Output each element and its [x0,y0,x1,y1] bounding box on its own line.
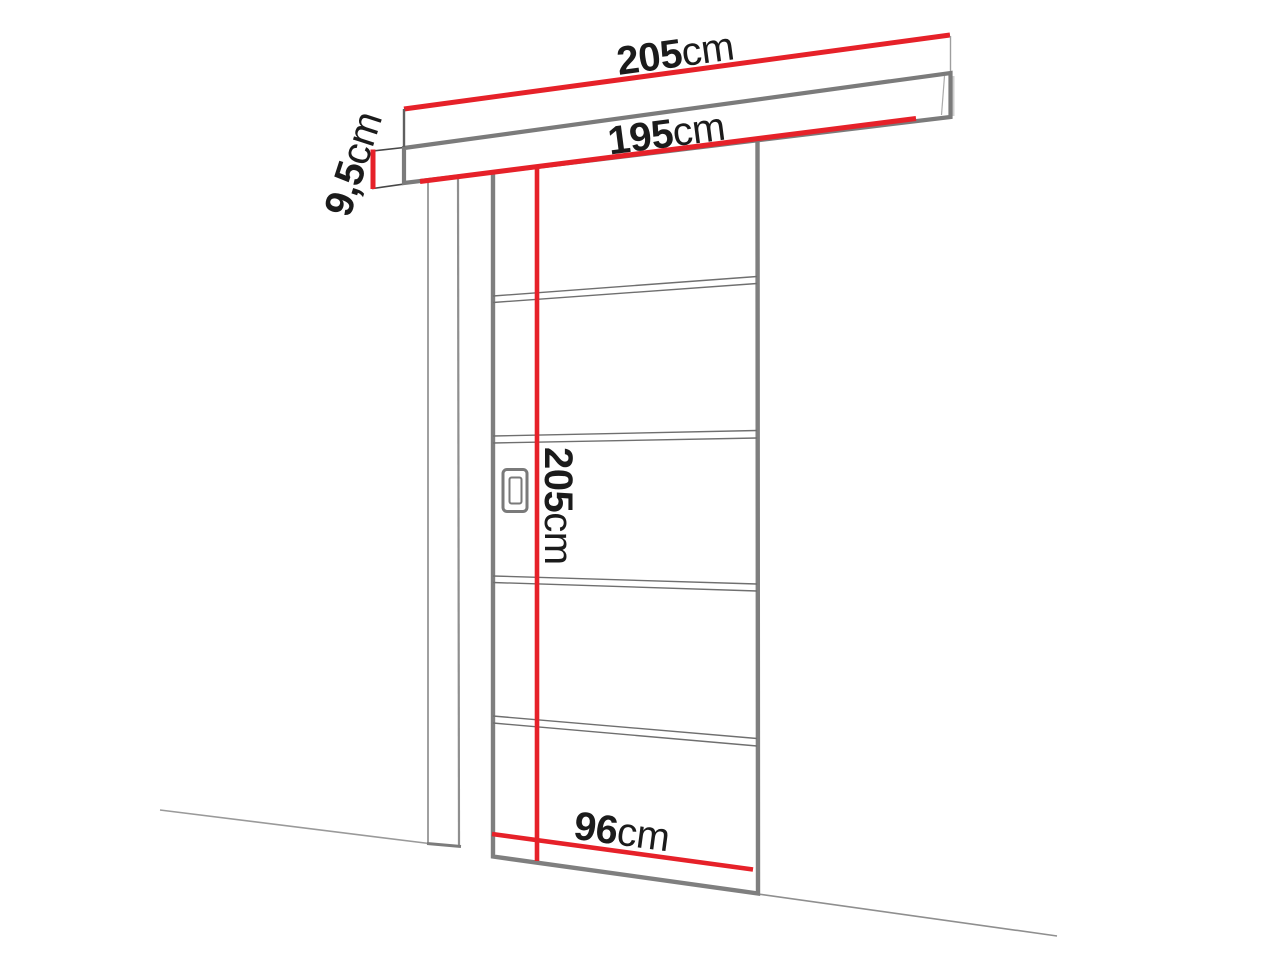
wall-edge-right [458,176,459,845]
label-door-height: 205cm [536,447,580,565]
door-outline [493,140,758,894]
diagram-canvas: 205cm 195cm 9,5cm 205cm 96cm [0,0,1280,960]
floor-line-left [160,810,429,844]
floor-line-right [758,894,1057,936]
door-handle-inner [510,478,522,504]
sliding-door-dimension-diagram: 205cm 195cm 9,5cm 205cm 96cm [0,0,1280,960]
label-track-total-width: 205cm [614,24,736,83]
door-panel [493,140,758,894]
wall-bottom-edge [427,844,461,847]
